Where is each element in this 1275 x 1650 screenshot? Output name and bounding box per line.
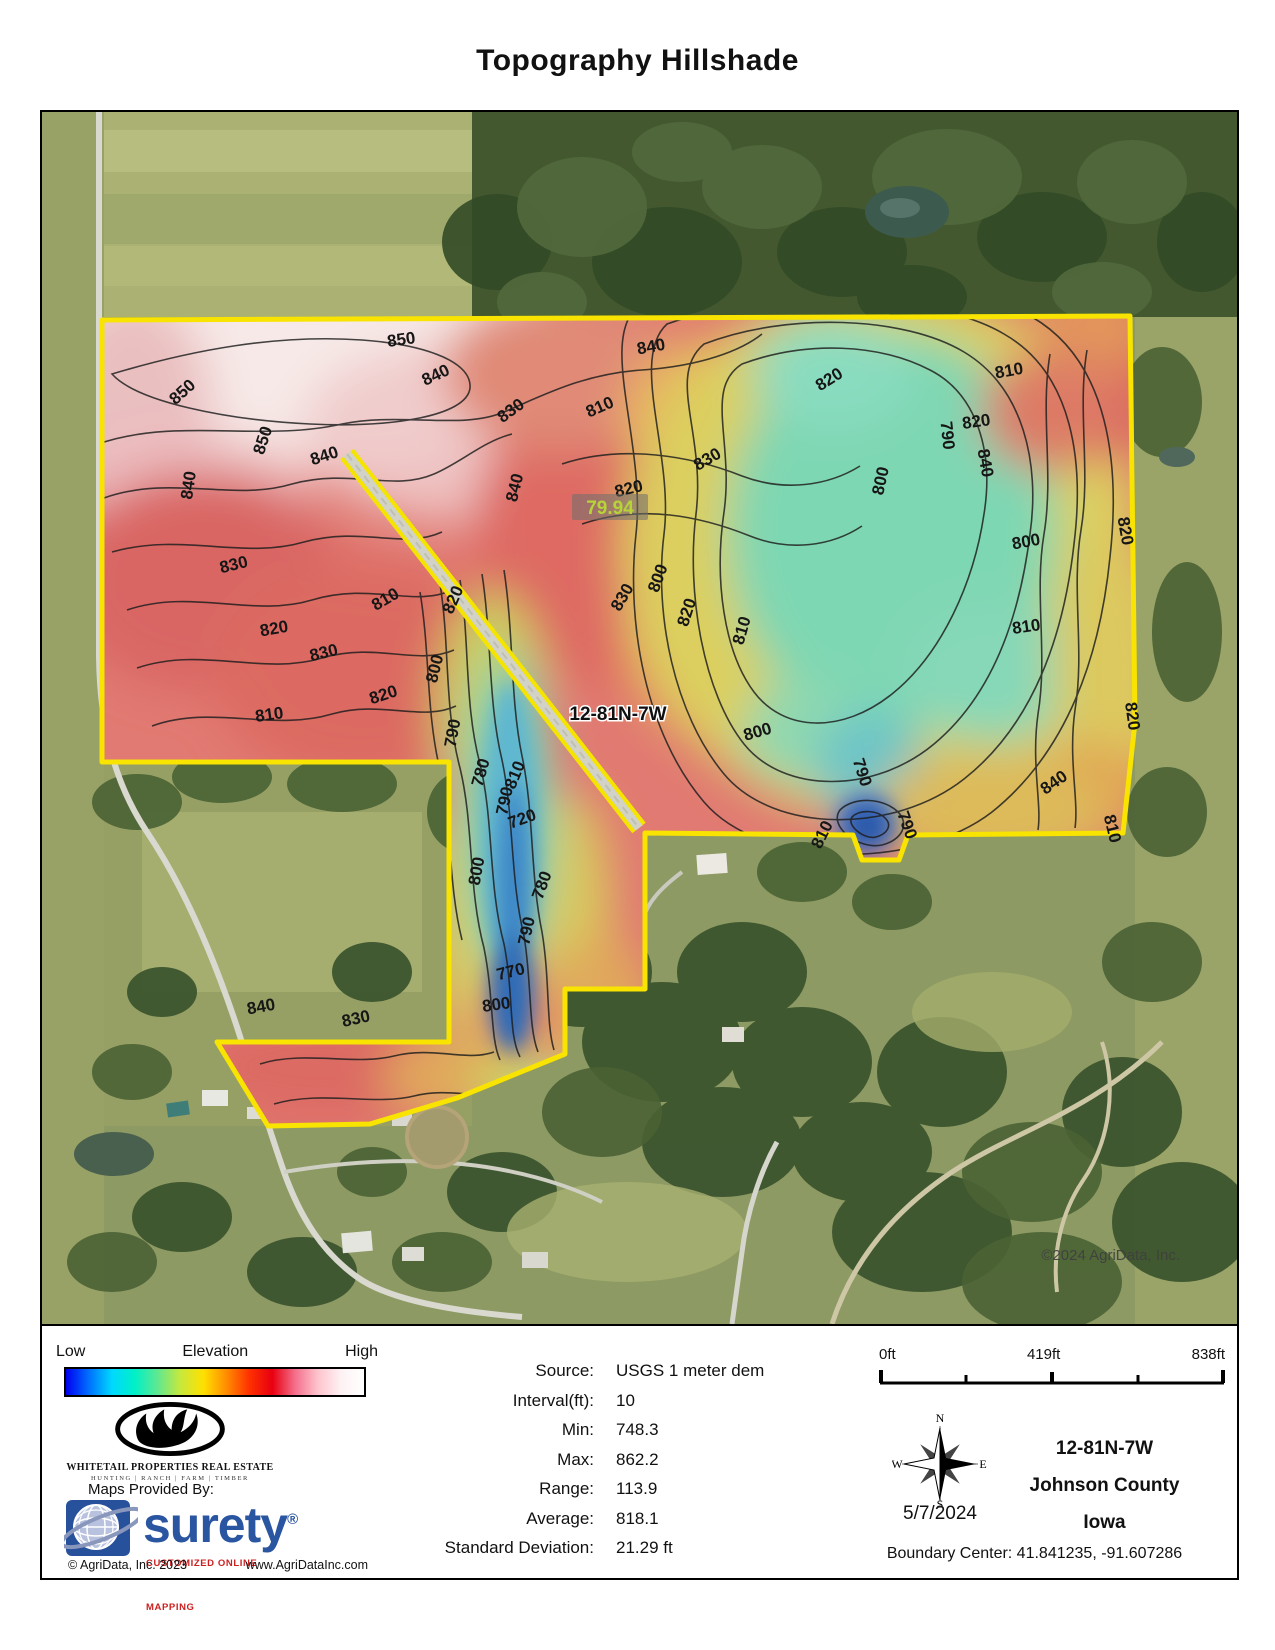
stat-row: Interval(ft):10	[342, 1386, 764, 1416]
township-label: 12-81N-7W	[1002, 1430, 1207, 1467]
elevation-title: Elevation	[182, 1343, 248, 1361]
agridata-credit: © AgriData, Inc. 2023 www.AgriDataInc.co…	[68, 1558, 368, 1572]
antler-logo-icon	[104, 1402, 236, 1456]
stat-row: Source:USGS 1 meter dem	[342, 1356, 764, 1386]
stat-row: Min:748.3	[342, 1415, 764, 1445]
stat-row: Max:862.2	[342, 1445, 764, 1475]
copyright-text: © AgriData, Inc. 2023	[68, 1558, 187, 1572]
contour-label: 810	[1011, 615, 1042, 638]
location-block: 12-81N-7W Johnson County Iowa	[1002, 1430, 1207, 1541]
svg-text:79.94: 79.94	[586, 498, 634, 519]
contour-label: 820	[961, 410, 992, 433]
compass-e-label: E	[979, 1457, 986, 1471]
map-canvas: 8508408508508408408408308108408308208008…	[42, 112, 1237, 1324]
scale-end-label: 838ft	[1192, 1346, 1225, 1363]
page-title: Topography Hillshade	[0, 44, 1275, 78]
contour-label: 840	[177, 470, 200, 501]
map-watermark: ©2024 AgriData, Inc.	[1041, 1247, 1180, 1264]
state-label: Iowa	[1002, 1504, 1207, 1541]
surety-logo: surety® CUSTOMIZED ONLINE MAPPING	[64, 1498, 298, 1558]
elevation-low-label: Low	[56, 1343, 85, 1361]
elevation-gradient-bar	[64, 1367, 366, 1397]
contour-label: 820	[1121, 701, 1144, 732]
contour-label: 800	[481, 993, 512, 1016]
contour-label: 790	[937, 420, 959, 450]
compass-rose: N E S W	[892, 1412, 988, 1508]
section-label: 12-81N-7W	[569, 704, 666, 725]
whitetail-name: WHITETAIL PROPERTIES REAL ESTATE	[60, 1462, 280, 1473]
scale-bar: 0ft 419ft 838ft	[879, 1346, 1225, 1385]
elevation-stats: Source:USGS 1 meter dem Interval(ft):10 …	[342, 1356, 764, 1563]
stat-row: Average:818.1	[342, 1504, 764, 1534]
county-label: Johnson County	[1002, 1467, 1207, 1504]
legend-panel: Low Elevation High WHITETAIL PROPERTIES …	[40, 1324, 1239, 1580]
globe-icon	[64, 1498, 138, 1558]
surety-tagline: CUSTOMIZED ONLINE MAPPING	[146, 1542, 298, 1630]
compass-w-label: W	[892, 1457, 903, 1471]
surety-wordmark: surety® CUSTOMIZED ONLINE MAPPING	[143, 1498, 298, 1547]
stat-row: Standard Deviation:21.29 ft	[342, 1533, 764, 1563]
compass-rose-icon: N E S W	[892, 1412, 988, 1508]
scale-start-label: 0ft	[879, 1346, 896, 1363]
whitetail-logo: WHITETAIL PROPERTIES REAL ESTATE HUNTING…	[60, 1402, 280, 1482]
boundary-center-label: Boundary Center: 41.841235, -91.607286	[832, 1545, 1237, 1563]
contour-label: 850	[386, 328, 417, 351]
contour-label: 810	[254, 703, 285, 726]
scale-mid-label: 419ft	[1027, 1346, 1060, 1363]
map-date: 5/7/2024	[892, 1503, 988, 1525]
compass-n-label: N	[936, 1412, 945, 1425]
acres-label: 79.94	[572, 494, 648, 520]
elevation-legend-labels: Low Elevation High	[56, 1343, 378, 1361]
registered-mark: ®	[287, 1511, 298, 1528]
scale-bar-icon	[879, 1369, 1225, 1385]
stat-row: Range:113.9	[342, 1474, 764, 1504]
maps-provided-by-label: Maps Provided By:	[88, 1481, 214, 1498]
topo-hillshade-map: 8508408508508408408408308108408308208008…	[40, 110, 1239, 1326]
